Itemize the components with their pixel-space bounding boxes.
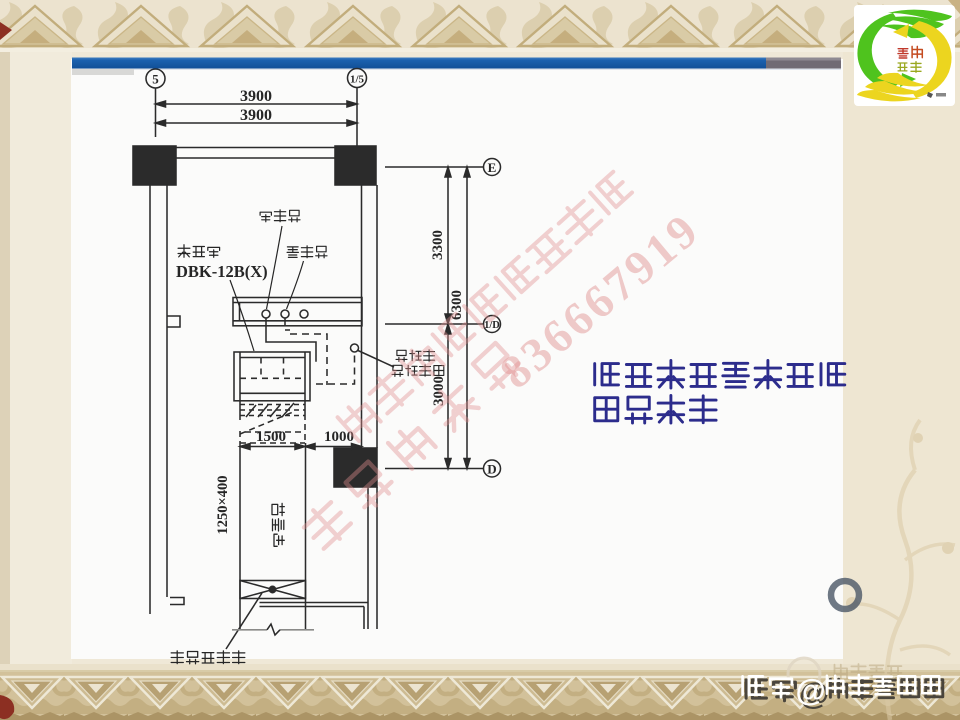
svg-text:3300: 3300: [430, 230, 446, 260]
svg-text:1500: 1500: [256, 429, 286, 445]
svg-text:3900: 3900: [240, 88, 272, 105]
svg-text:E: E: [488, 160, 497, 175]
svg-text:1/D: 1/D: [484, 320, 500, 331]
svg-text:5: 5: [152, 72, 159, 87]
svg-text:@: @: [796, 673, 826, 708]
svg-text:1250×400: 1250×400: [215, 475, 231, 534]
svg-text:1/5: 1/5: [350, 74, 365, 86]
svg-text:3900: 3900: [240, 107, 272, 124]
svg-text:DBK-12B(X): DBK-12B(X): [176, 262, 268, 281]
svg-text:D: D: [487, 462, 496, 477]
